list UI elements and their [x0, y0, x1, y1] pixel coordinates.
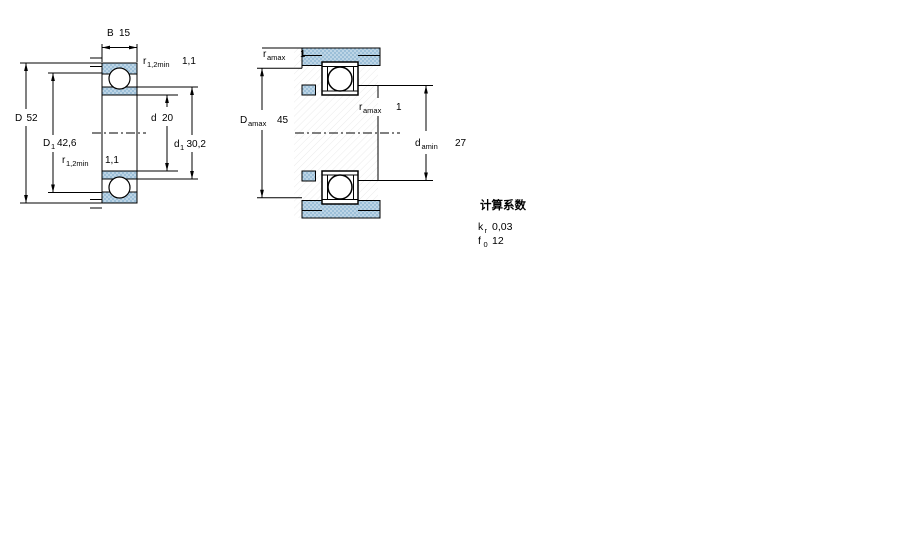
shaft-shoulder-top [302, 85, 316, 95]
dim-D-label: D52 [15, 113, 38, 124]
dim-D1-label: D142,6 [43, 138, 77, 151]
ball-upper [328, 67, 352, 91]
calc-factor-kr: kr0,03 [478, 221, 513, 235]
dim-d1: d130,2 [137, 87, 206, 179]
mounted-bearing-upper [322, 62, 358, 95]
bearing-dimension-drawing: B15 D52 D142,6 d20 d130, [0, 0, 900, 560]
dim-Damax: Damax45 [240, 68, 302, 197]
dim-D: D52 [15, 63, 102, 203]
ball-upper [109, 68, 130, 89]
dim-d1-label: d130,2 [174, 139, 206, 152]
dim-B: B15 [102, 28, 137, 62]
dim-Damax-label: Damax45 [240, 115, 289, 128]
shaft-shoulder-bottom [302, 171, 316, 181]
dim-d-label: d20 [151, 113, 174, 124]
dim-damin-label: damin27 [415, 138, 467, 151]
dim-r12-top-label: r1,2min1,1 [143, 56, 196, 69]
dim-B-label: B15 [107, 28, 131, 39]
drawing-canvas: B15 D52 D142,6 d20 d130, [0, 0, 900, 560]
calc-factors-block: 计算系数 kr0,03 f012 [478, 198, 526, 249]
calc-factor-f0: f012 [478, 235, 504, 249]
left-bearing-section-view [92, 63, 146, 203]
right-mounting-view: Damax45 ramax1 ramax1 damin27 [240, 48, 467, 218]
ball-lower [109, 177, 130, 198]
ball-lower [328, 175, 352, 199]
calc-factors-title: 计算系数 [480, 198, 526, 212]
mounted-bearing-lower [322, 171, 358, 204]
